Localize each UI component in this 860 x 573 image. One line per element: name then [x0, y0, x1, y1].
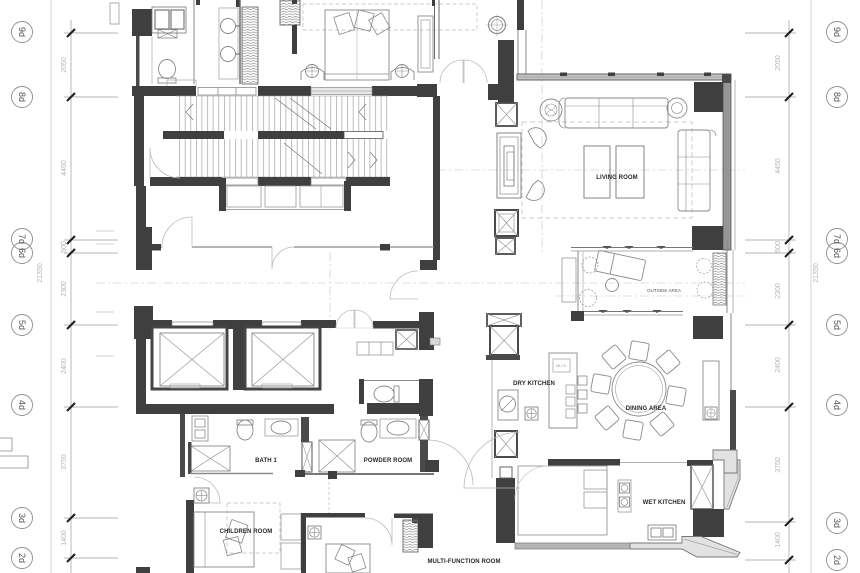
svg-text:21350: 21350	[37, 263, 44, 283]
svg-text:8d: 8d	[17, 92, 27, 102]
svg-text:BATH 1: BATH 1	[255, 458, 277, 464]
svg-text:AB CD: AB CD	[556, 364, 566, 368]
svg-text:2400: 2400	[61, 358, 68, 374]
svg-text:3d: 3d	[17, 513, 27, 523]
svg-text:4d: 4d	[17, 400, 27, 410]
svg-text:2d: 2d	[17, 553, 27, 563]
svg-text:2050: 2050	[775, 55, 782, 71]
svg-text:WET KITCHEN: WET KITCHEN	[643, 500, 686, 506]
svg-text:4450: 4450	[775, 158, 782, 174]
svg-text:500: 500	[61, 241, 68, 253]
svg-text:MULTI-FUNCTION ROOM: MULTI-FUNCTION ROOM	[427, 559, 500, 565]
svg-text:DINING AREA: DINING AREA	[626, 406, 667, 412]
svg-text:500: 500	[775, 241, 782, 253]
svg-text:8d: 8d	[832, 92, 842, 102]
svg-text:3d: 3d	[832, 518, 842, 528]
svg-text:21350: 21350	[813, 263, 820, 283]
svg-text:OUTSIDE AREA: OUTSIDE AREA	[647, 288, 682, 293]
svg-text:4450: 4450	[61, 160, 68, 176]
svg-text:2d: 2d	[832, 555, 842, 565]
svg-text:6d: 6d	[17, 248, 27, 258]
svg-text:LIVING ROOM: LIVING ROOM	[596, 175, 637, 181]
svg-text:1400: 1400	[775, 532, 782, 548]
svg-text:6d: 6d	[832, 248, 842, 258]
svg-text:1400: 1400	[61, 530, 68, 546]
svg-text:3750: 3750	[61, 454, 68, 470]
svg-text:5d: 5d	[17, 320, 27, 330]
svg-text:2300: 2300	[61, 281, 68, 297]
svg-text:2050: 2050	[61, 57, 68, 73]
svg-text:2400: 2400	[775, 357, 782, 373]
svg-text:7d: 7d	[17, 234, 27, 244]
svg-text:7d: 7d	[832, 234, 842, 244]
svg-text:CHILDREN ROOM: CHILDREN ROOM	[220, 529, 273, 535]
svg-text:DRY KITCHEN: DRY KITCHEN	[513, 381, 555, 387]
svg-text:9d: 9d	[832, 27, 842, 37]
svg-text:5d: 5d	[832, 320, 842, 330]
svg-text:3750: 3750	[775, 457, 782, 473]
svg-text:POWDER ROOM: POWDER ROOM	[364, 458, 412, 464]
svg-text:4d: 4d	[832, 400, 842, 410]
svg-text:2300: 2300	[775, 283, 782, 299]
svg-text:9d: 9d	[17, 27, 27, 37]
